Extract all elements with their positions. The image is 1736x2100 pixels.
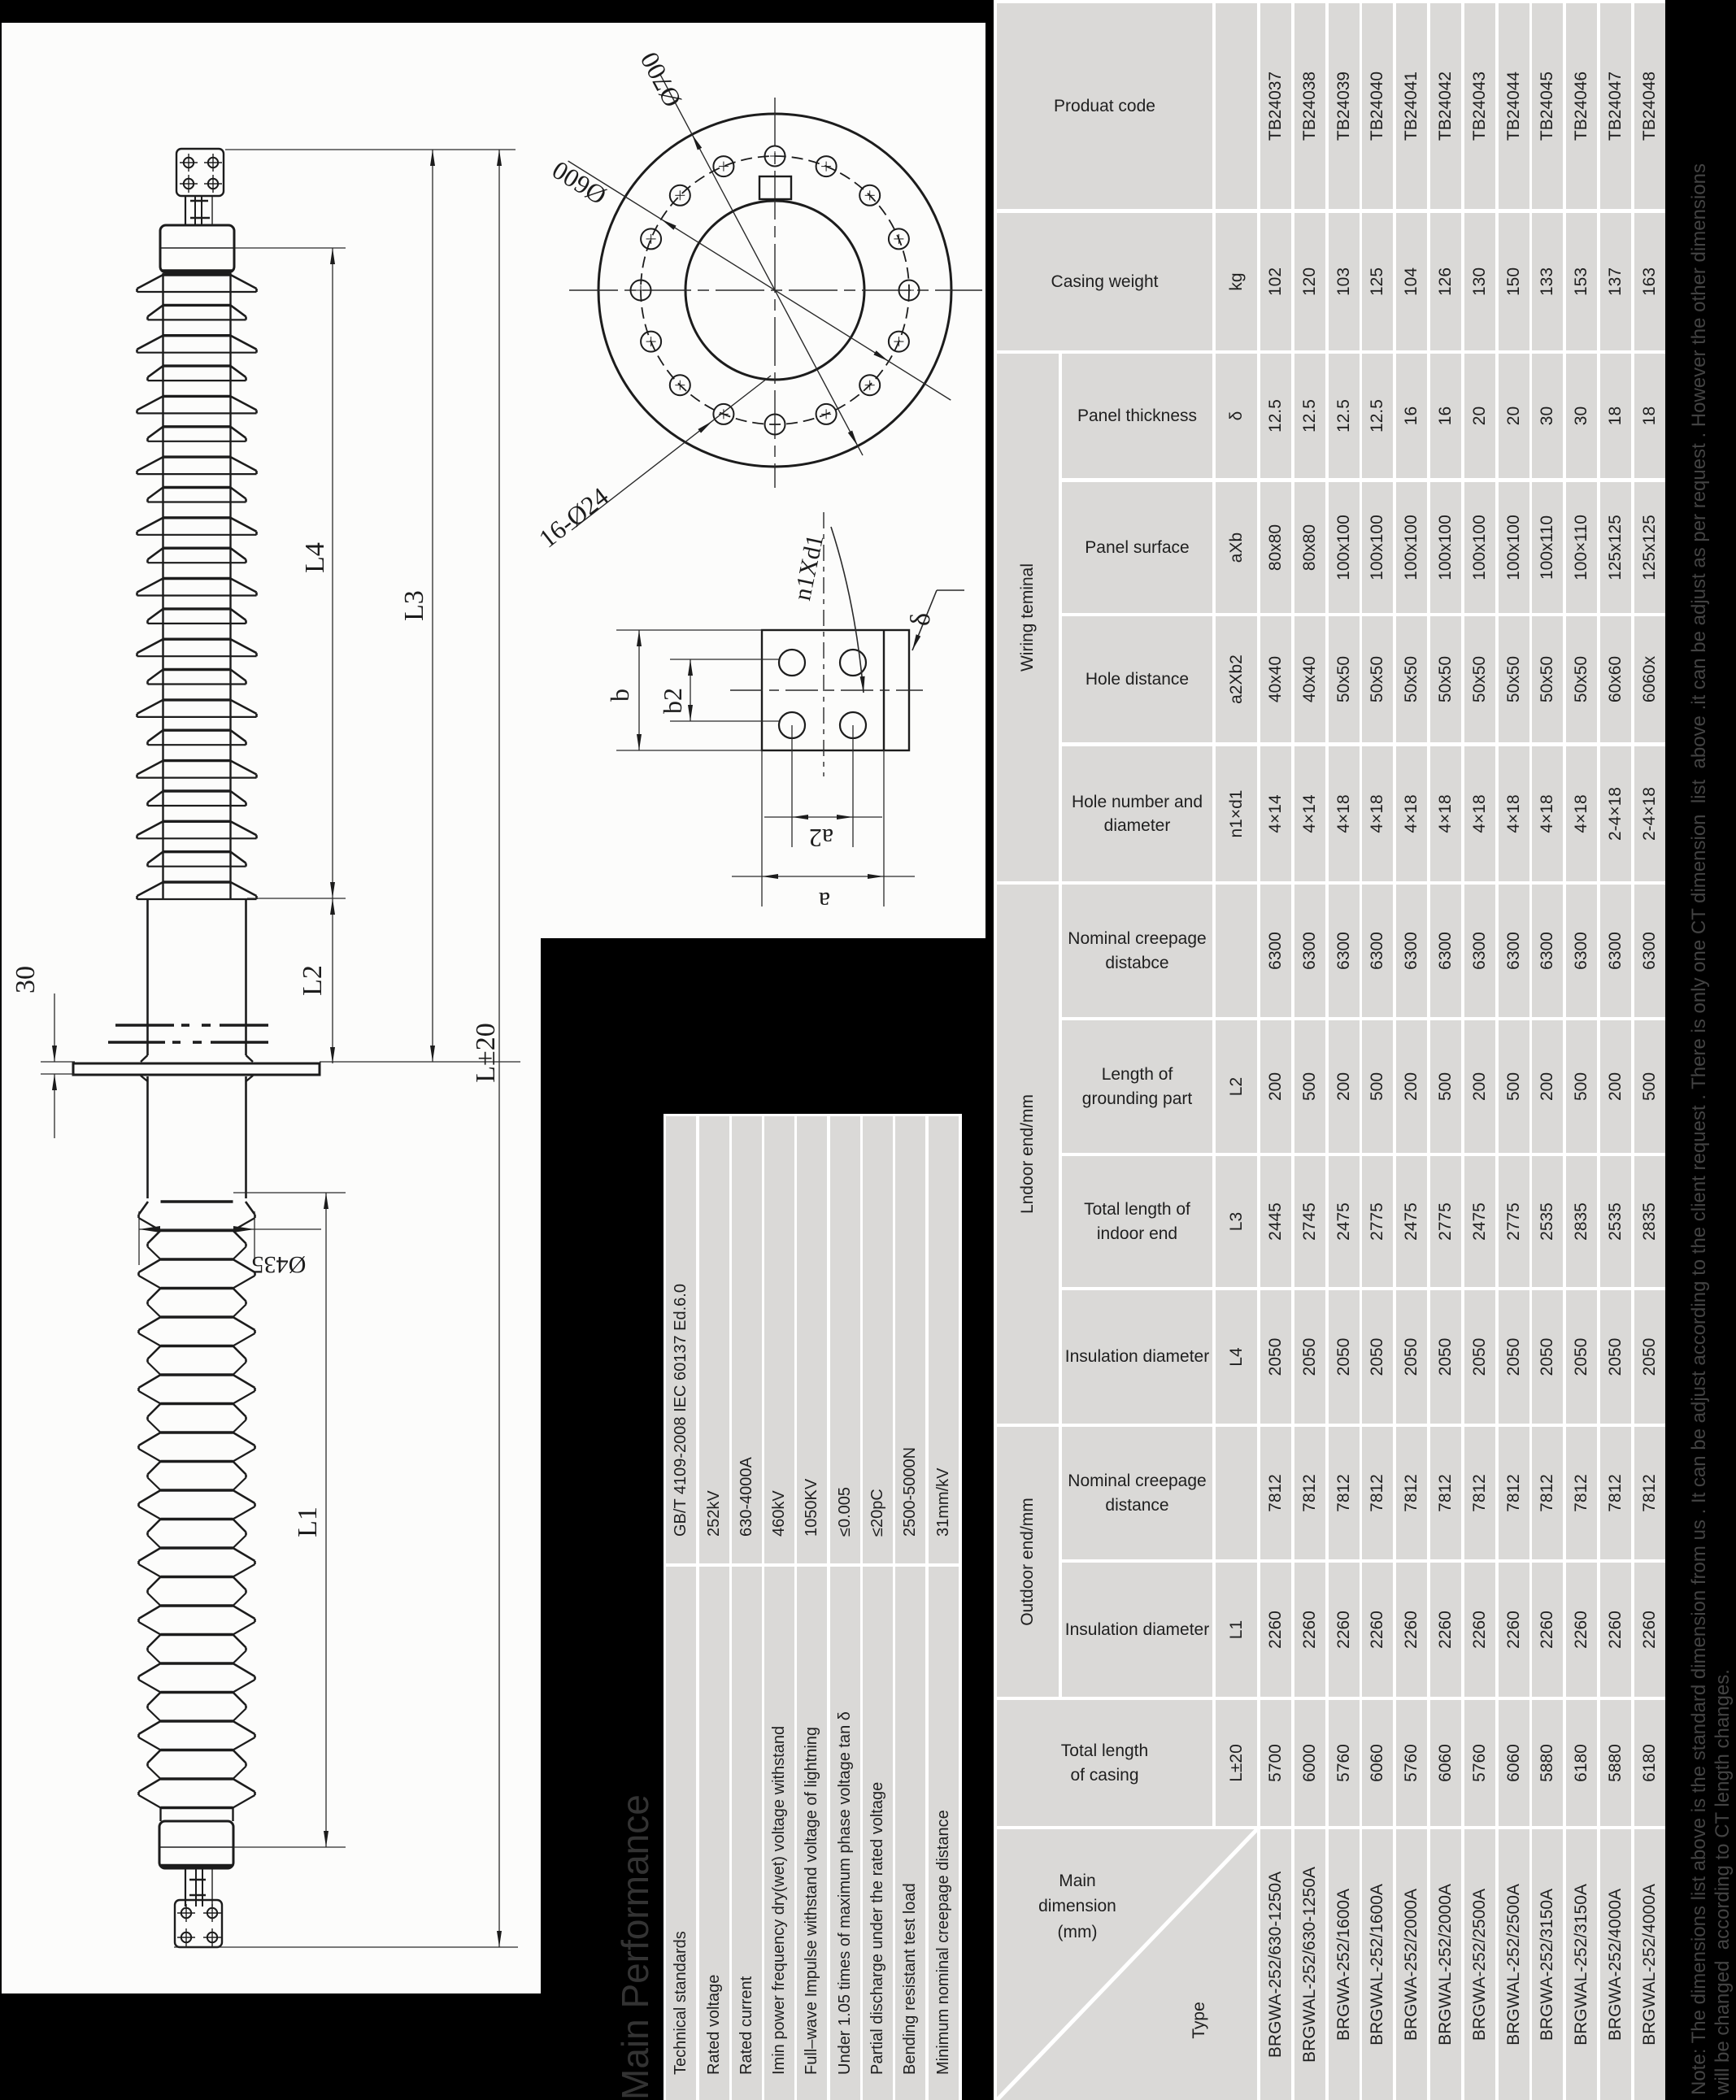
svg-text:b2: b2 bbox=[658, 688, 687, 714]
svg-text:L2: L2 bbox=[298, 965, 328, 996]
svg-text:L4: L4 bbox=[300, 542, 330, 573]
svg-text:a: a bbox=[819, 887, 830, 916]
svg-text:L1: L1 bbox=[293, 1507, 323, 1537]
svg-text:Ø435: Ø435 bbox=[252, 1251, 307, 1278]
svg-text:30: 30 bbox=[11, 966, 41, 993]
svg-text:L3: L3 bbox=[399, 590, 429, 621]
svg-text:b: b bbox=[605, 689, 634, 702]
svg-text:L±20: L±20 bbox=[471, 1023, 501, 1082]
svg-text:a2: a2 bbox=[809, 824, 833, 853]
svg-text:δ: δ bbox=[906, 613, 936, 626]
